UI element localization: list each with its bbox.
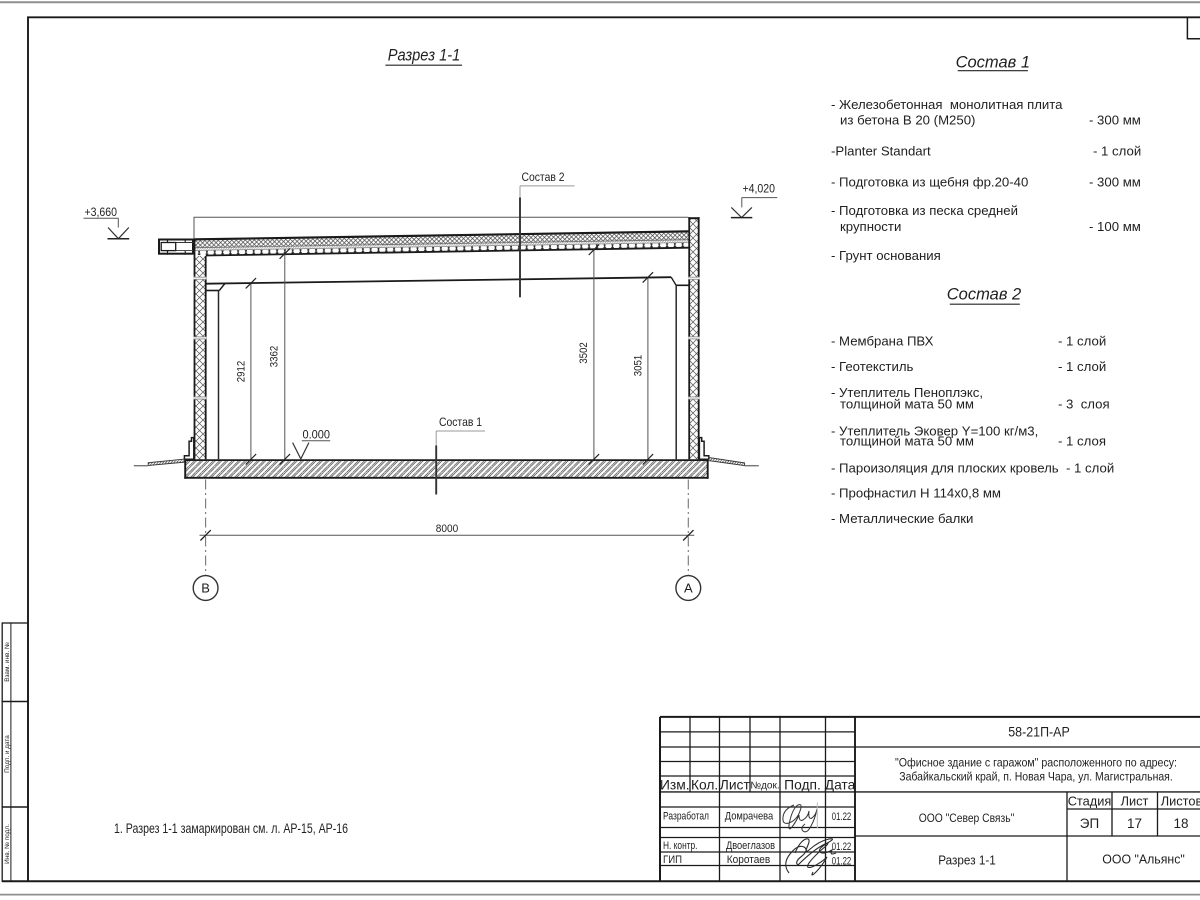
svg-text:Подп.: Подп. [784,778,821,793]
svg-text:Состав 2: Состав 2 [522,170,565,184]
svg-text:Разработал: Разработал [663,811,709,823]
svg-text:- Железобетонная монолитная п: - Железобетонная монолитная плита [831,97,1063,112]
svg-text:Домрачева: Домрачева [725,811,774,823]
svg-text:Состав 2: Состав 2 [947,286,1021,304]
svg-text:ГИП: ГИП [663,854,682,866]
svg-text:- Подготовка из щебня фр.20-40: - Подготовка из щебня фр.20-40 [831,174,1028,189]
svg-text:из бетона В 20 (М250): из бетона В 20 (М250) [840,113,975,128]
svg-text:Изм.: Изм. [660,778,690,793]
svg-text:01.22: 01.22 [832,811,852,823]
svg-text:ЭП: ЭП [1080,816,1099,831]
svg-text:Разрез 1-1: Разрез 1-1 [938,854,996,868]
svg-text:В: В [201,581,210,596]
svg-text:-Planter Standart: -Planter Standart [831,143,931,158]
svg-text:- 300 мм: - 300 мм [1089,113,1141,128]
svg-text:- 1 слой: - 1 слой [1058,334,1106,349]
svg-text:- Металлические балки: - Металлические балки [831,511,973,526]
svg-text:2912: 2912 [236,361,248,383]
svg-text:толщиной мата 50 мм: толщиной мата 50 мм [840,397,974,412]
svg-text:3051: 3051 [632,355,644,377]
svg-text:№док.: №док. [750,781,779,792]
svg-text:17: 17 [1127,816,1142,831]
svg-text:Забайкальский край, п. Новая Ч: Забайкальский край, п. Новая Чара, ул. М… [899,770,1173,784]
svg-text:Дата: Дата [825,778,856,793]
svg-text:Лист: Лист [1121,794,1149,809]
svg-text:Двоеглазов: Двоеглазов [726,840,775,852]
svg-text:- 1 слой: - 1 слой [1093,143,1141,158]
svg-text:Н. контр.: Н. контр. [663,840,698,852]
svg-text:Инв. № подл.: Инв. № подл. [4,824,11,864]
svg-text:3362: 3362 [268,346,280,368]
svg-text:- 100 мм: - 100 мм [1089,219,1141,234]
svg-text:Подп. и дата: Подп. и дата [4,735,11,773]
svg-text:Состав 1: Состав 1 [439,415,482,429]
svg-text:- 300 мм: - 300 мм [1089,174,1141,189]
svg-text:- Геотекстиль: - Геотекстиль [831,359,914,374]
svg-text:18: 18 [1173,816,1188,831]
svg-text:- Пароизоляция для плоских кро: - Пароизоляция для плоских кровель - 1 с… [831,460,1114,475]
svg-text:Кол.: Кол. [691,778,718,793]
svg-text:- Подготовка из песка средней: - Подготовка из песка средней [831,203,1018,218]
svg-text:Лист: Лист [720,778,751,793]
svg-text:58-21П-АР: 58-21П-АР [1008,725,1070,740]
svg-text:8000: 8000 [436,523,459,535]
svg-text:Коротаев: Коротаев [727,854,771,866]
svg-text:- 1 слоя: - 1 слоя [1058,434,1106,449]
svg-text:- Грунт основания: - Грунт основания [831,248,941,263]
svg-text:Состав 1: Состав 1 [956,54,1030,72]
svg-text:+3,660: +3,660 [85,205,118,219]
svg-text:- 3 слоя: - 3 слоя [1058,397,1110,412]
svg-text:ООО "Север Связь": ООО "Север Связь" [919,811,1015,825]
svg-text:- Профнастил Н 114х0,8 мм: - Профнастил Н 114х0,8 мм [831,486,1001,501]
svg-text:"Офисное здание с гаражом" рас: "Офисное здание с гаражом" расположенног… [895,756,1177,770]
svg-text:Листов: Листов [1161,794,1200,809]
svg-text:01.22: 01.22 [832,855,852,867]
svg-text:- 1 слой: - 1 слой [1058,359,1106,374]
svg-text:А: А [684,581,693,596]
svg-text:толщиной мата 50 мм: толщиной мата 50 мм [840,434,974,449]
svg-text:1. Разрез 1-1 замаркирован см.: 1. Разрез 1-1 замаркирован см. л. АР-15,… [114,821,348,836]
svg-text:3502: 3502 [578,342,590,364]
svg-text:крупности: крупности [840,219,901,234]
svg-text:0.000: 0.000 [303,428,331,442]
svg-text:Стадия: Стадия [1068,794,1112,809]
svg-text:Взам. инв. №: Взам. инв. № [4,642,11,682]
svg-text:- Мембрана ПВХ: - Мембрана ПВХ [831,334,934,349]
svg-text:Разрез 1-1: Разрез 1-1 [388,46,461,65]
svg-text:01.22: 01.22 [832,841,852,853]
svg-text:+4,020: +4,020 [743,181,776,195]
svg-text:ООО "Альянс": ООО "Альянс" [1102,852,1185,867]
